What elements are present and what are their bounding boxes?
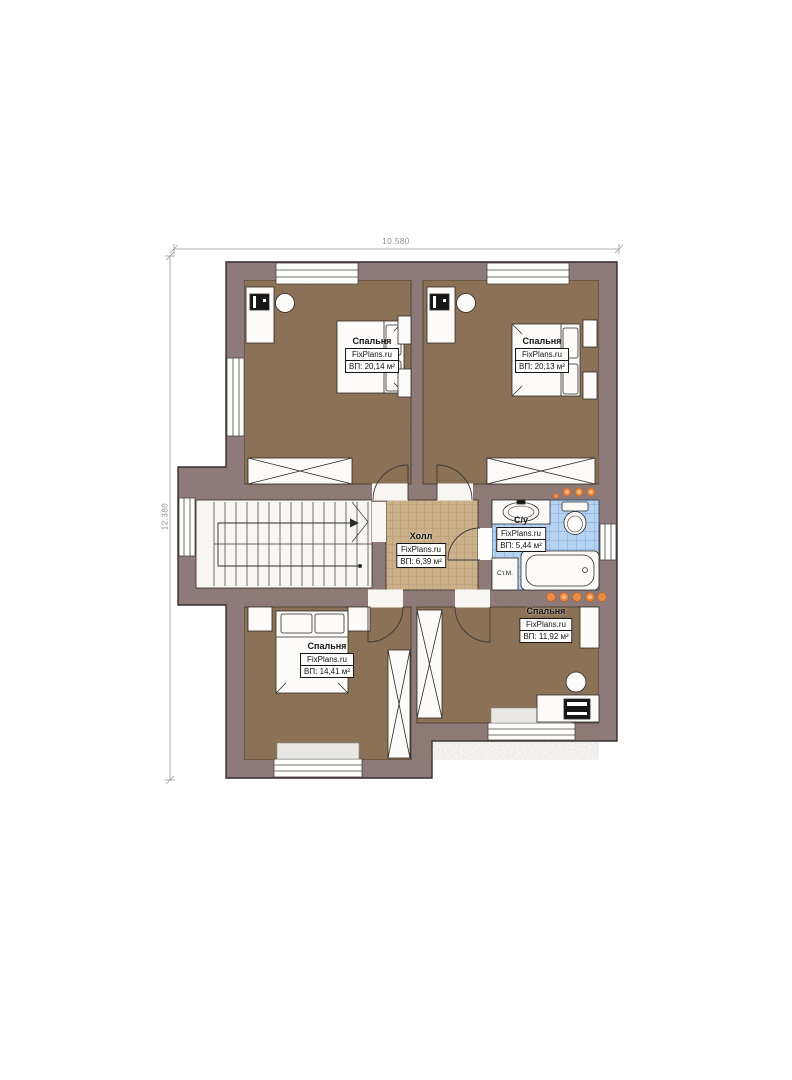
window-bottom-left-bedroom	[274, 743, 362, 777]
room-name: Спальня	[519, 606, 572, 617]
window-left-top-bedroom	[227, 358, 244, 436]
window-stairwell	[179, 498, 195, 556]
brand-badge: FixPlans.ru	[345, 348, 399, 361]
room-name: Холл	[396, 531, 446, 542]
monitor-icon	[250, 294, 269, 310]
toilet	[562, 502, 588, 535]
room-name: С/у	[496, 515, 546, 526]
bathtub	[521, 551, 599, 590]
desk-bottom-right-bedroom	[537, 695, 599, 722]
brand-badge: FixPlans.ru	[519, 618, 572, 631]
window-top-left-bedroom	[276, 263, 358, 284]
dimension-width-label: 10.580	[382, 237, 409, 246]
chair-bottom-right-bedroom	[566, 672, 586, 692]
nightstand	[398, 369, 411, 397]
chair-top-right-bedroom	[457, 294, 476, 313]
wardrobe-bottom-right-bedroom	[417, 610, 442, 718]
room-area: ВП: 20,13 м²	[515, 360, 569, 373]
room-area: ВП: 20,14 м²	[345, 360, 399, 373]
room-label-bedroom-bottom-left: Спальня FixPlans.ru ВП: 14,41 м²	[300, 641, 354, 678]
room-label-hall: Холл FixPlans.ru ВП: 6,39 м²	[396, 531, 446, 568]
brand-badge: FixPlans.ru	[515, 348, 569, 361]
washing-machine-label: Ст.М.	[497, 570, 513, 577]
room-area: ВП: 14,41 м²	[300, 665, 354, 678]
room-area: ВП: 5,44 м²	[496, 539, 546, 552]
window-bathroom	[600, 524, 616, 560]
nightstand	[248, 607, 272, 631]
room-label-bathroom: С/у FixPlans.ru ВП: 5,44 м²	[496, 515, 546, 552]
nightstand	[583, 372, 597, 399]
room-label-bedroom-top-left: Спальня FixPlans.ru ВП: 20,14 м²	[345, 336, 399, 373]
window-top-right-bedroom	[487, 263, 569, 284]
dresser-bottom-right-bedroom	[580, 607, 599, 648]
room-name: Спальня	[515, 336, 569, 347]
room-name: Спальня	[345, 336, 399, 347]
nightstand	[583, 320, 597, 347]
wardrobe-top-right-bedroom	[487, 458, 595, 484]
room-area: ВП: 6,39 м²	[396, 555, 446, 568]
wardrobe-bottom-left-bedroom	[388, 650, 410, 758]
desk-top-right-bedroom	[427, 287, 455, 343]
nightstand	[398, 316, 411, 344]
floor-plan-page: 10.580 12.380 Спальня FixPlans.ru ВП: 20…	[0, 0, 792, 1080]
room-name: Спальня	[300, 641, 354, 652]
desk-top-left-bedroom	[246, 287, 274, 343]
dimension-height-label: 12.380	[161, 494, 170, 540]
chair-top-left-bedroom	[276, 294, 295, 313]
nightstand	[348, 607, 370, 631]
brand-badge: FixPlans.ru	[300, 653, 354, 666]
room-area: ВП: 11,92 м²	[519, 630, 572, 643]
brand-badge: FixPlans.ru	[496, 527, 546, 540]
room-label-bedroom-bottom-right: Спальня FixPlans.ru ВП: 11,92 м²	[519, 606, 572, 643]
wardrobe-top-left-bedroom	[248, 458, 352, 484]
room-label-bedroom-top-right: Спальня FixPlans.ru ВП: 20,13 м²	[515, 336, 569, 373]
brand-badge: FixPlans.ru	[396, 543, 446, 556]
monitor-icon	[430, 294, 449, 310]
